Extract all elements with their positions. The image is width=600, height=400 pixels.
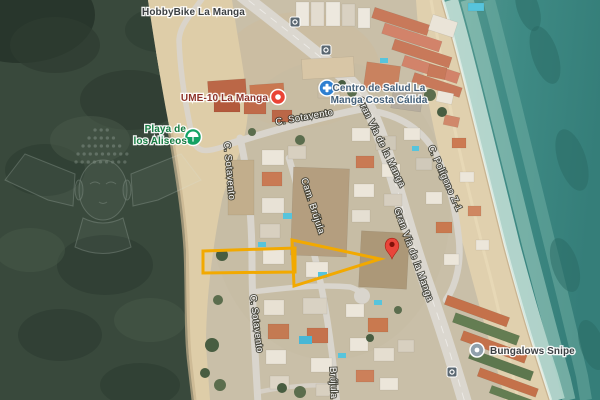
- map-canvas[interactable]: C. Sotavento Gran Vía de la Manga Gran V…: [0, 0, 600, 400]
- poi-label-playa-line1[interactable]: Playa de: [145, 124, 187, 135]
- poi-dot-icon[interactable]: [470, 343, 484, 357]
- bus-stop-icon[interactable]: [447, 367, 457, 377]
- street-label-brujula-bottom: Brújula: [327, 367, 339, 399]
- poi-label-ume10[interactable]: UME-10 La Manga: [181, 93, 268, 104]
- bus-stop-icon[interactable]: [321, 45, 331, 55]
- poi-label-playa-line2[interactable]: los Aliseos: [133, 136, 187, 147]
- poi-label-hobbybike[interactable]: HobbyBike La Manga: [142, 7, 245, 18]
- poi-label-bungalows[interactable]: Bungalows Snipe: [490, 346, 575, 357]
- poi-label-centro-salud-line2[interactable]: Manga Costa Cálida: [331, 95, 428, 106]
- red-dot-marker-icon[interactable]: [271, 90, 286, 105]
- bus-stop-icon[interactable]: [290, 17, 300, 27]
- poi-label-centro-salud-line1[interactable]: Centro de Salud La: [333, 83, 426, 94]
- beach-icon[interactable]: [185, 129, 202, 146]
